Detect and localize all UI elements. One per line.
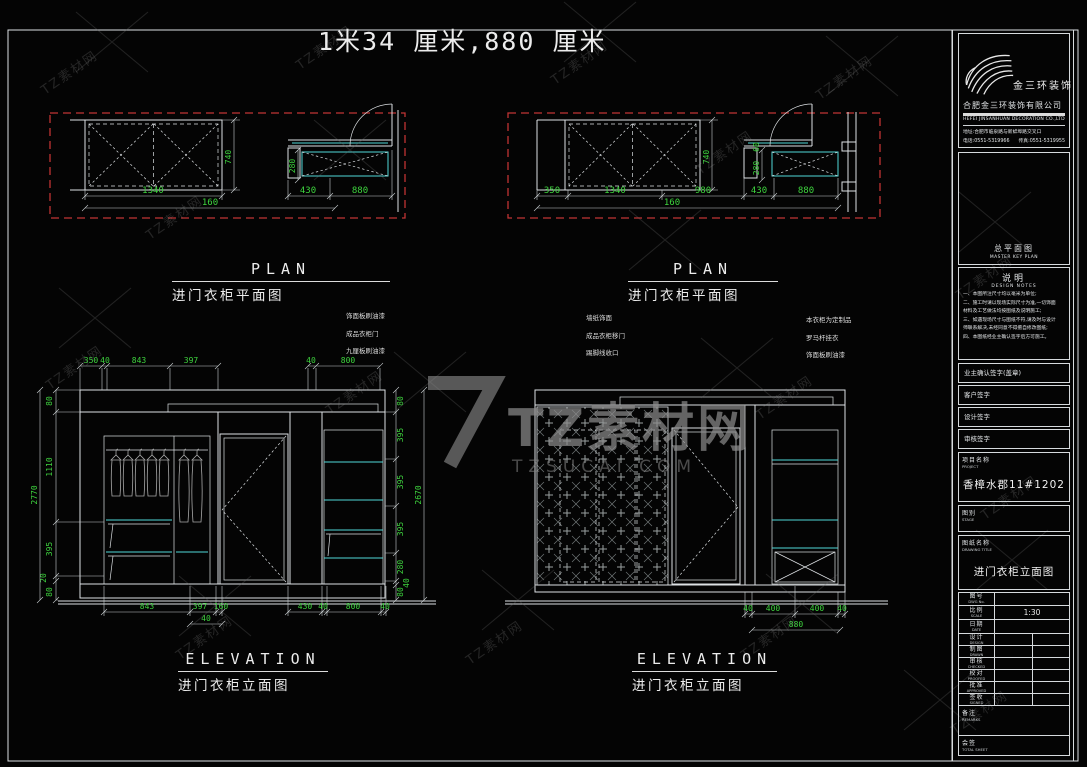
note-line: 九厘板刷油漆 — [346, 343, 385, 361]
dim-text: 40 — [380, 602, 390, 611]
project-label-en: PROJECT — [962, 464, 990, 469]
watermark-tile-text: TZ素材网 — [38, 48, 101, 99]
plan-left-label: PLAN 进门衣柜平面图 — [172, 260, 390, 304]
company-logo-icon — [963, 47, 1015, 97]
sheet-count-label-en: TOTAL SHEET — [962, 747, 988, 752]
sheet-count-label-cn: 会签 — [962, 738, 988, 747]
row-label-en: SIGNED — [970, 701, 984, 705]
keyplan-box: 总平面图 MASTER KEY PLAN — [958, 152, 1070, 265]
notes-line: 四、本图纸经业主确认签字后方可施工。 — [959, 334, 1069, 343]
elevation-left-notes: 饰面板刷油漆 成品衣柜门 九厘板刷油漆 — [346, 308, 385, 361]
plan-left-label-cn: 进门衣柜平面图 — [172, 284, 390, 304]
elevation-left-label-en: ELEVATION — [178, 650, 328, 672]
dim-text: 280 — [752, 161, 761, 176]
note-line: 饰面板刷油漆 — [346, 308, 385, 326]
row-label-en: CHECKED — [968, 665, 985, 669]
dim-text: 40 — [306, 356, 316, 365]
sheet-count-box: 会签 TOTAL SHEET — [958, 736, 1070, 756]
watermark-name: TZ素材网 — [508, 399, 752, 459]
cad-drawing-sheet: 740 280 1340 430 880 160 — [0, 0, 1087, 767]
company-name-cn: 合肥金三环装饰有限公司 — [963, 100, 1065, 111]
plan-right-drawing: 740 280 60 350 1340 980 430 880 160 — [508, 104, 880, 218]
dim-text: 40 — [201, 614, 211, 623]
dim-text: 1340 — [604, 186, 626, 196]
notes-title-en: DESIGN NOTES — [959, 284, 1069, 289]
row-value — [995, 620, 1069, 633]
row-value — [1032, 694, 1070, 705]
elevation-right-label-en: ELEVATION — [632, 650, 777, 672]
elevation-right-label-cn: 进门衣柜立面图 — [632, 674, 777, 694]
row-label-en: DRAWN — [970, 653, 984, 657]
table-row: 比例SCALE 1:30 — [958, 606, 1070, 620]
brand-name: 金三环装饰 — [1013, 77, 1073, 92]
project-label-cn: 项目名称 — [962, 455, 990, 464]
company-phone: 电话:0551-5319966 — [963, 137, 1010, 144]
table-row: 日期DATE — [958, 620, 1070, 634]
title-block: 金三环装饰 合肥金三环装饰有限公司 HEFEI JINSANHUAN DECOR… — [952, 30, 1079, 761]
dim-text: 160 — [664, 198, 680, 208]
watermark-logo — [428, 383, 494, 465]
note-line: 墙纸饰面 — [586, 310, 625, 328]
dim-text: 20 — [39, 573, 48, 583]
watermark-domain: TZSUCAI.COM — [511, 457, 697, 477]
dim-text: 843 — [140, 602, 155, 611]
dim-text: 40 — [837, 604, 847, 613]
drawing-title-value: 进门衣柜立面图 — [959, 564, 1069, 579]
dim-text: 1340 — [142, 186, 164, 196]
stage-label-cn: 图别 — [962, 508, 976, 517]
dim-text: 880 — [798, 186, 814, 196]
dim-text: 1110 — [45, 457, 54, 476]
row-value — [995, 634, 1032, 645]
watermark-tile-text: TZ素材网 — [463, 618, 526, 669]
watermark-tile-text: TZ素材网 — [43, 343, 106, 394]
design-notes-box: 说明 DESIGN NOTES 一、本图所注尺寸均以毫米为单位; 二、施工时请以… — [958, 267, 1070, 360]
watermark-tile-text: TZ素材网 — [813, 53, 876, 104]
table-row: 设计DESIGN — [958, 634, 1070, 646]
notes-line: 材料及工艺做法均按图纸及说明施工; — [959, 308, 1069, 317]
company-fax: 传真:0551-5319955 — [1018, 137, 1065, 144]
dim-text: 40 — [743, 604, 753, 613]
scale-value: 1:30 — [995, 606, 1069, 619]
dim-text: 397 — [184, 356, 199, 365]
dim-text: 397 — [193, 602, 208, 611]
row-value — [1032, 670, 1070, 681]
watermark-layer: TZ素材网 TZ素材网 TZ素材网 TZ素材网 TZ素材网 TZ素材网 TZ素材… — [38, 2, 1048, 739]
company-info: 合肥金三环装饰有限公司 HEFEI JINSANHUAN DECORATION … — [963, 100, 1065, 144]
drawing-title-label-cn: 图纸名称 — [962, 538, 992, 547]
dim-text: 80 — [45, 396, 54, 406]
row-value — [1032, 634, 1070, 645]
watermark-tile-text: TZ素材网 — [323, 368, 386, 419]
dim-text: 280 — [288, 159, 297, 174]
row-value — [995, 670, 1032, 681]
dim-text: 2770 — [30, 485, 39, 504]
keyplan-label-en: MASTER KEY PLAN — [990, 255, 1038, 260]
elevation-left-drawing: 350 40 843 397 40 800 80 1110 395 20 80 … — [30, 356, 436, 627]
dim-text: 60 — [752, 142, 761, 152]
plan-left-label-en: PLAN — [172, 260, 390, 282]
note-line: 饰面板刷油漆 — [806, 347, 852, 365]
dim-text: 430 — [298, 602, 313, 611]
dim-text: 80 — [45, 587, 54, 597]
row-label-en: SCALE — [971, 614, 983, 618]
notes-line: 三、如遇现场尺寸与图纸不符,请及时与设计 — [959, 317, 1069, 326]
row-value — [1032, 646, 1070, 657]
sheet-frame — [8, 30, 1078, 761]
company-address: 地址:合肥市临泉路与新蚌埠路交叉口 — [963, 128, 1065, 135]
table-row: 批准APPROVED — [958, 682, 1070, 694]
notes-line: 一、本图所注尺寸均以毫米为单位; — [959, 291, 1069, 300]
notes-line: 二、施工时请以现场实际尺寸为准,一切饰面 — [959, 300, 1069, 309]
dim-text: 430 — [300, 186, 316, 196]
dim-text: 280 — [396, 560, 405, 575]
dim-text: 880 — [352, 186, 368, 196]
note-line: 成品衣柜门 — [346, 326, 385, 344]
plan-left-drawing: 740 280 1340 430 880 160 — [50, 104, 405, 218]
sign-row: 客户签字 — [958, 385, 1070, 405]
stage-label-en: STAGE — [962, 517, 976, 522]
row-value — [995, 694, 1032, 705]
row-value — [1032, 682, 1070, 693]
project-box: 项目名称 PROJECT 香樟水郡11#1202 — [958, 452, 1070, 502]
stage-box: 图别 STAGE — [958, 505, 1070, 532]
titleblock-logo-box: 金三环装饰 合肥金三环装饰有限公司 HEFEI JINSANHUAN DECOR… — [958, 33, 1070, 148]
watermark-tile-text: TZ素材网 — [753, 373, 816, 424]
row-value — [1032, 658, 1070, 669]
note-line: 成品衣柜移门 — [586, 328, 625, 346]
project-value: 香樟水郡11#1202 — [959, 477, 1069, 492]
dim-text: 740 — [224, 150, 233, 165]
divider-line — [963, 125, 1065, 126]
table-row: 图号DWG No. — [958, 592, 1070, 606]
keyplan-label-cn: 总平面图 — [994, 243, 1034, 254]
divider-bar — [963, 113, 1065, 116]
cad-linework: 740 280 1340 430 880 160 — [0, 0, 1087, 767]
sheet-title: 1米34 厘米,880 厘米 — [318, 22, 606, 58]
elevation-right-label: ELEVATION 进门衣柜立面图 — [632, 650, 777, 694]
elevation-left-label: ELEVATION 进门衣柜立面图 — [178, 650, 328, 694]
table-row: 校对PROOFED — [958, 670, 1070, 682]
note-line: 踢脚线收口 — [586, 345, 625, 363]
dim-text: 395 — [396, 475, 405, 490]
row-value — [995, 658, 1032, 669]
row-label-en: DESIGN — [970, 641, 984, 645]
notes-title-cn: 说明 — [959, 271, 1069, 284]
remarks-box: 备注 REMARKS — [958, 706, 1070, 736]
remarks-label-cn: 备注 — [962, 708, 980, 717]
dim-text: 350 — [544, 186, 560, 196]
row-label-en: PROOFED — [968, 677, 985, 681]
dim-text: 980 — [695, 186, 711, 196]
sign-row: 审核签字 — [958, 429, 1070, 449]
elevation-right-notes-right: 本衣柜为定制品 罗马杆挂衣 饰面板刷油漆 — [806, 312, 852, 365]
remarks-label-en: REMARKS — [962, 717, 980, 722]
dim-text: 395 — [396, 522, 405, 537]
row-label-en: DATE — [972, 628, 981, 632]
sign-row: 设计签字 — [958, 407, 1070, 427]
dim-text: 2670 — [414, 485, 423, 504]
plan-right-label-en: PLAN — [628, 260, 778, 282]
elevation-left-label-cn: 进门衣柜立面图 — [178, 674, 328, 694]
company-name-en: HEFEI JINSANHUAN DECORATION CO.,LTD — [963, 117, 1065, 122]
sign-row: 业主确认签字(盖章) — [958, 363, 1070, 383]
row-label-en: DWG No. — [968, 600, 984, 604]
dim-text: 430 — [751, 186, 767, 196]
table-row: 制图DRAWN — [958, 646, 1070, 658]
notes-line: 师联系解决,未经同意不得擅自修改图纸; — [959, 325, 1069, 334]
titleblock-table: 图号DWG No. 比例SCALE 1:30 日期DATE 设计DESIGN 制… — [958, 592, 1070, 756]
dim-text: 800 — [346, 602, 361, 611]
dim-text: 400 — [766, 604, 781, 613]
drawing-title-box: 图纸名称 DRAWING TITLE 进门衣柜立面图 — [958, 535, 1070, 590]
row-value — [995, 646, 1032, 657]
dim-text: 395 — [396, 428, 405, 443]
dim-text: 843 — [132, 356, 147, 365]
note-line: 罗马杆挂衣 — [806, 330, 852, 348]
plan-right-label: PLAN 进门衣柜平面图 — [628, 260, 778, 304]
row-value — [995, 682, 1032, 693]
dim-text: 40 — [402, 578, 411, 588]
plan-right-label-cn: 进门衣柜平面图 — [628, 284, 778, 304]
row-label-en: APPROVED — [967, 689, 987, 693]
dim-text: 395 — [45, 542, 54, 557]
row-value — [995, 593, 1069, 605]
table-row: 审核CHECKED — [958, 658, 1070, 670]
dim-text: 40 — [318, 602, 328, 611]
drawing-title-label-en: DRAWING TITLE — [962, 547, 992, 552]
elevation-right-notes-left: 墙纸饰面 成品衣柜移门 踢脚线收口 — [586, 310, 625, 363]
table-row: 签收SIGNED — [958, 694, 1070, 706]
dim-text: 80 — [396, 587, 405, 597]
note-line: 本衣柜为定制品 — [806, 312, 852, 330]
